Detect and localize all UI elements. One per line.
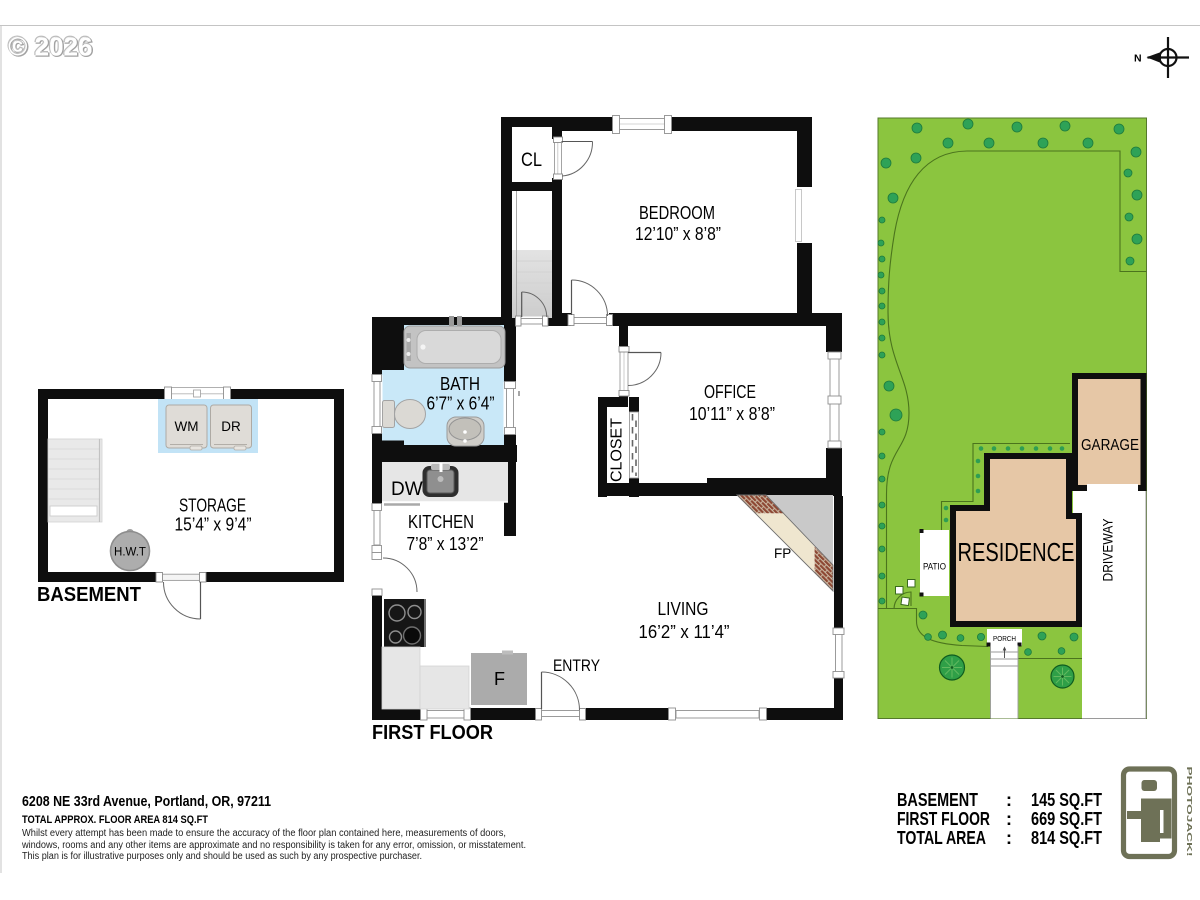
- svg-text:This plan is for illustrative: This plan is for illustrative purposes o…: [22, 851, 422, 862]
- svg-text:CLOSET: CLOSET: [609, 418, 626, 482]
- svg-text::: :: [1006, 808, 1012, 829]
- svg-text:669 SQ.FT: 669 SQ.FT: [1031, 808, 1103, 829]
- svg-text:BEDROOM: BEDROOM: [639, 202, 715, 223]
- svg-text:BASEMENT: BASEMENT: [897, 789, 979, 810]
- svg-text:FIRST FLOOR: FIRST FLOOR: [897, 808, 990, 829]
- svg-text:windows, rooms and any other i: windows, rooms and any other items are a…: [21, 840, 526, 851]
- svg-text:PATIO: PATIO: [923, 562, 946, 572]
- svg-text:STORAGE: STORAGE: [179, 495, 246, 516]
- svg-text::: :: [1006, 827, 1012, 848]
- svg-text:KITCHEN: KITCHEN: [408, 511, 474, 532]
- svg-text:WM: WM: [175, 419, 199, 434]
- svg-text:ENTRY: ENTRY: [553, 656, 600, 675]
- svg-text:DRIVEWAY: DRIVEWAY: [1101, 519, 1116, 582]
- svg-text:145 SQ.FT: 145 SQ.FT: [1031, 789, 1103, 810]
- svg-text:TOTAL APPROX. FLOOR AREA 814 S: TOTAL APPROX. FLOOR AREA 814 SQ.FT: [22, 814, 208, 826]
- svg-text:7’8” x 13’2”: 7’8” x 13’2”: [407, 533, 484, 554]
- svg-text:DW: DW: [391, 479, 423, 500]
- svg-text:15’4” x 9’4”: 15’4” x 9’4”: [175, 514, 252, 535]
- svg-text:Whilst every attempt has been: Whilst every attempt has been made to en…: [22, 828, 506, 839]
- svg-text:BASEMENT: BASEMENT: [37, 584, 141, 606]
- svg-text:CL: CL: [521, 150, 542, 171]
- svg-text::: :: [1006, 789, 1012, 810]
- svg-text:10’11” x 8’8”: 10’11” x 8’8”: [689, 403, 775, 424]
- svg-text:LIVING: LIVING: [658, 598, 709, 619]
- svg-text:FP: FP: [774, 546, 791, 561]
- svg-text:6208 NE 33rd Avenue, Portland,: 6208 NE 33rd Avenue, Portland, OR, 97211: [22, 794, 271, 810]
- svg-text:© 2026: © 2026: [8, 31, 92, 61]
- svg-text:GARAGE: GARAGE: [1081, 437, 1139, 454]
- svg-text:12’10” x 8’8”: 12’10” x 8’8”: [635, 223, 721, 244]
- svg-text:FIRST FLOOR: FIRST FLOOR: [372, 722, 493, 744]
- svg-text:RESIDENCE: RESIDENCE: [958, 537, 1075, 567]
- svg-text:N: N: [1134, 53, 1142, 65]
- svg-text:H.W.T: H.W.T: [114, 547, 146, 559]
- svg-text:814 SQ.FT: 814 SQ.FT: [1031, 827, 1103, 848]
- svg-text:OFFICE: OFFICE: [704, 381, 756, 402]
- svg-text:PORCH: PORCH: [993, 634, 1016, 643]
- svg-text:16’2” x 11’4”: 16’2” x 11’4”: [639, 621, 730, 642]
- svg-text:BATH: BATH: [440, 373, 480, 394]
- svg-text:TOTAL AREA: TOTAL AREA: [897, 827, 986, 848]
- svg-text:F: F: [494, 669, 505, 689]
- svg-text:6’7” x 6’4”: 6’7” x 6’4”: [427, 393, 495, 414]
- svg-text:DR: DR: [221, 419, 241, 434]
- svg-text:PHOTOJACK!: PHOTOJACK!: [1185, 767, 1194, 857]
